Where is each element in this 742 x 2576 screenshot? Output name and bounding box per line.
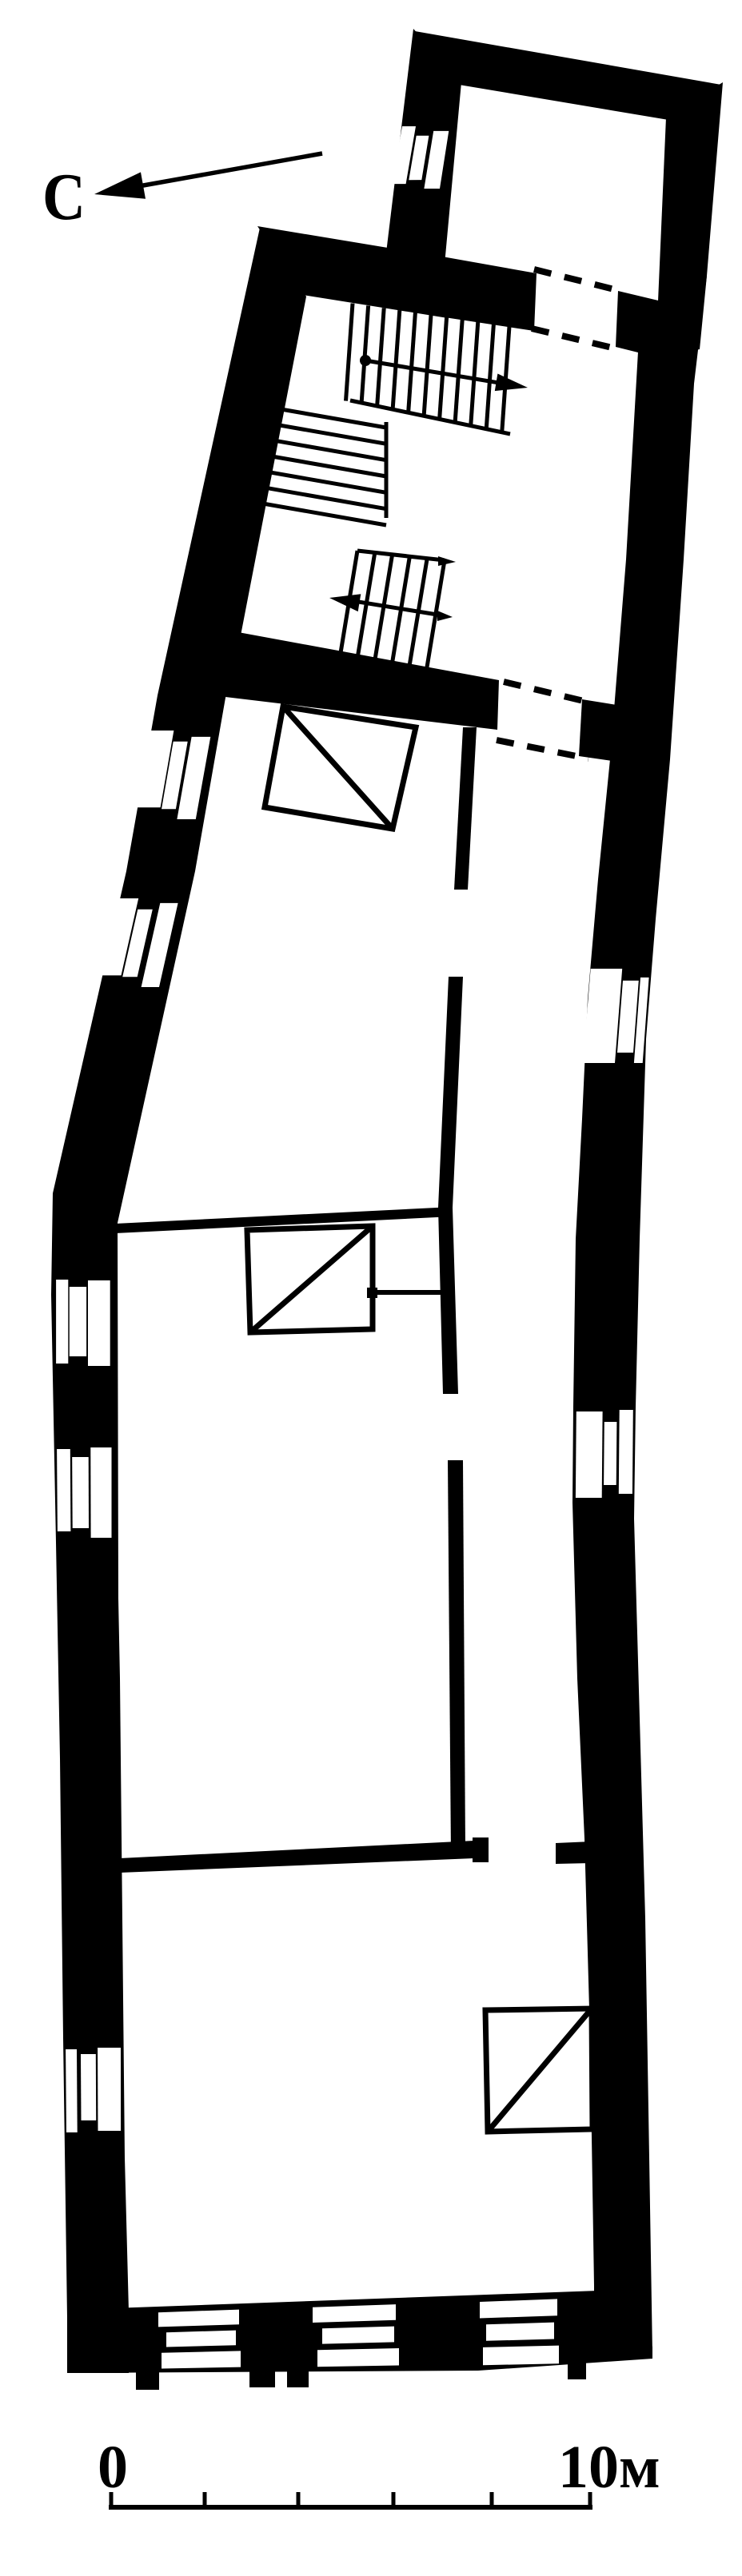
svg-text:С: С <box>42 160 86 234</box>
svg-text:0: 0 <box>98 2434 128 2501</box>
svg-text:10м: 10м <box>558 2434 660 2501</box>
